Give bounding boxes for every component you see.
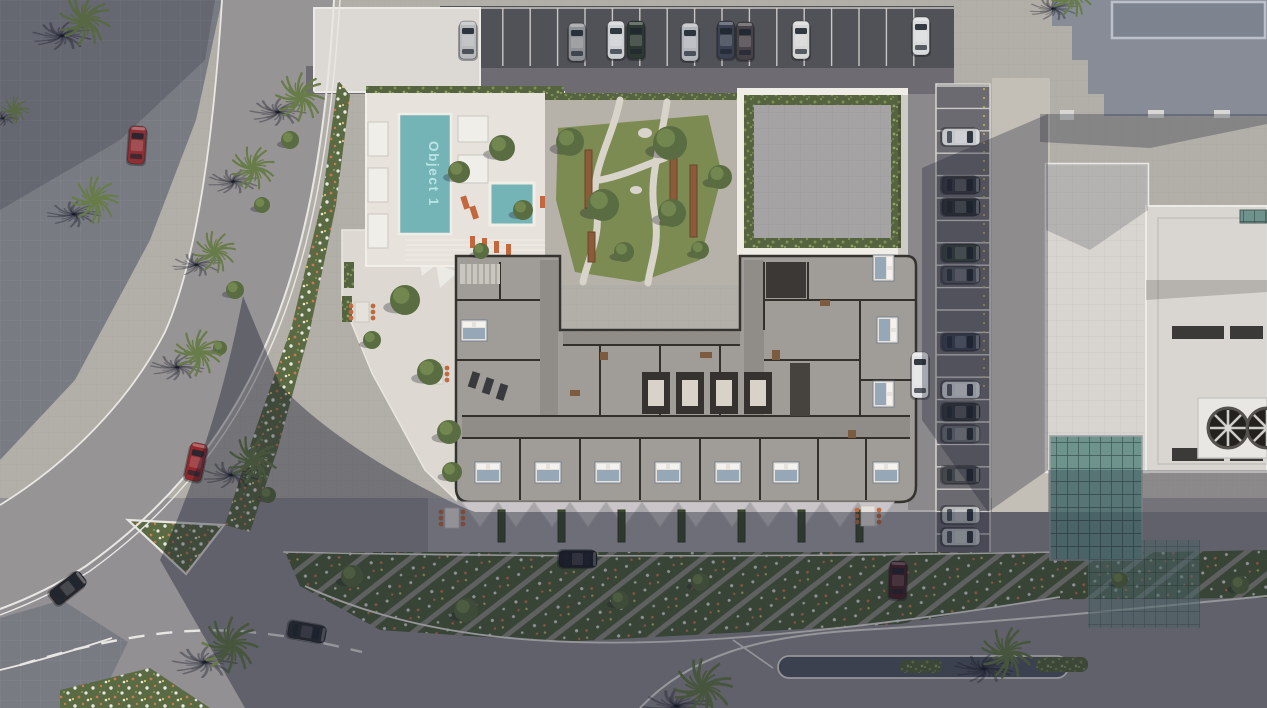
bed (873, 462, 899, 483)
swimming-pool (399, 114, 451, 234)
site-render-page: Object 1 (0, 0, 1267, 708)
garden-courtyard (545, 93, 740, 285)
car (940, 127, 980, 147)
roof-vents (1172, 326, 1224, 339)
bed (773, 462, 799, 483)
car (567, 23, 587, 63)
car (911, 17, 931, 57)
bed (715, 462, 741, 483)
hvac-fans (1208, 408, 1267, 448)
car (735, 22, 755, 62)
cafe-table-set (349, 302, 376, 322)
car (791, 21, 811, 61)
car (626, 21, 646, 61)
corridor (462, 416, 910, 438)
car (716, 21, 736, 61)
bed (873, 255, 894, 281)
elevator-cab (648, 380, 664, 406)
car (458, 21, 478, 61)
car (680, 23, 700, 63)
pool-label: Object 1 (426, 141, 441, 207)
car (606, 21, 626, 61)
garden-bench (588, 232, 595, 262)
hedge-row (366, 86, 564, 93)
bed (877, 317, 898, 343)
bed (475, 462, 501, 483)
garden-bench (690, 165, 697, 237)
green-bordered-roof (737, 88, 908, 255)
elevator-cab (716, 380, 732, 406)
bed (535, 462, 561, 483)
bed (873, 381, 894, 407)
bed (595, 462, 621, 483)
aerial-site-plan: Object 1 (0, 0, 1267, 708)
elevator-cab (750, 380, 766, 406)
bed (461, 320, 487, 341)
bed (655, 462, 681, 483)
elevator-cab (682, 380, 698, 406)
